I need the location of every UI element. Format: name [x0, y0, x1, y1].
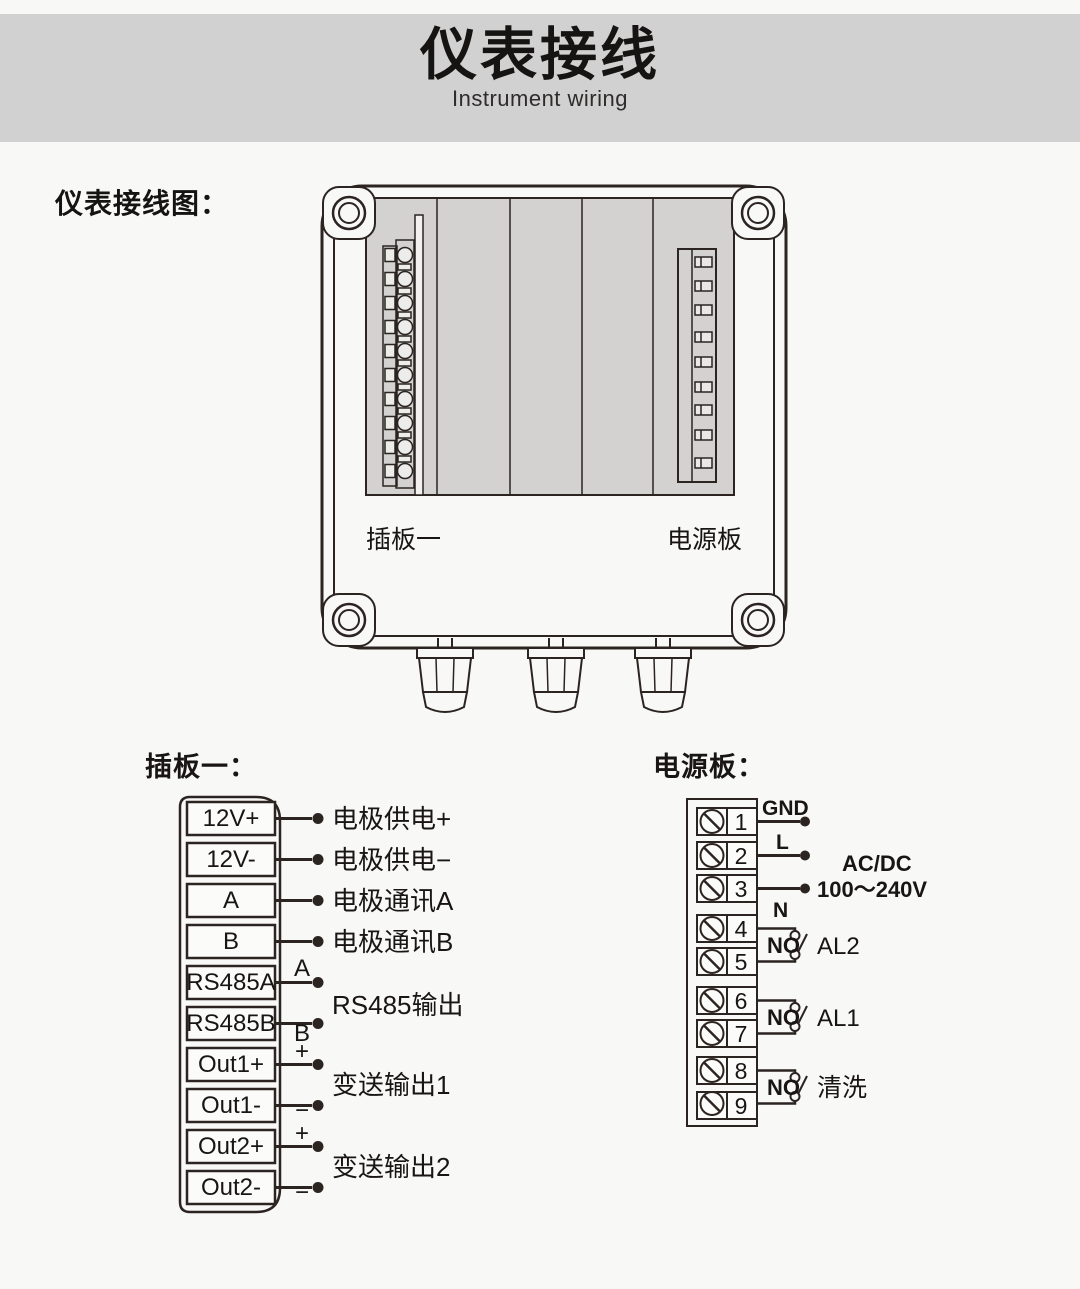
cable-gland: [528, 638, 584, 712]
plugboard-wiring-section: 插板一：: [140, 745, 570, 1235]
supply-rating: AC/DC: [842, 851, 912, 876]
plugboard-connector: [383, 215, 423, 495]
terminal-label: 12V-: [206, 846, 255, 873]
relay-label: AL2: [817, 933, 860, 960]
wire-label: 变送输出2: [332, 1152, 450, 1182]
supply-rating: 100～240V: [817, 877, 927, 902]
wire-label: RS485输出: [332, 990, 464, 1020]
page-subtitle: Instrument wiring: [0, 86, 1080, 112]
wire-dots: [313, 813, 324, 1193]
polarity-mark: +: [295, 1038, 309, 1065]
terminal-label: Out2-: [201, 1174, 261, 1201]
terminal-number: 4: [735, 916, 748, 942]
terminal-number: 2: [735, 843, 748, 869]
slot-left-label: 插板一: [366, 526, 441, 554]
terminal-label: A: [223, 887, 239, 914]
terminal-number: 5: [735, 949, 748, 975]
cable-gland: [635, 638, 691, 712]
terminal-number: 6: [735, 988, 748, 1014]
terminal-label: RS485A: [186, 969, 275, 996]
no-contact-label: NO: [767, 1005, 800, 1030]
diagram-caption: 仪表接线图：: [55, 182, 229, 222]
no-contact-label: NO: [767, 1075, 800, 1100]
header-banner: 仪表接线 Instrument wiring: [0, 14, 1080, 142]
polarity-mark: +: [295, 1120, 309, 1147]
relay-label: AL1: [817, 1005, 860, 1032]
wire-label: 电极通讯B: [332, 927, 453, 957]
gnd-label: GND: [762, 797, 809, 820]
wire-dots: [800, 817, 810, 894]
terminal-label: Out1-: [201, 1092, 261, 1119]
polarity-mark: −: [295, 1179, 309, 1206]
wire-label: 电极供电+: [332, 804, 451, 834]
no-contact-label: NO: [767, 933, 800, 958]
neutral-label: N: [773, 899, 788, 922]
cable-gland: [417, 638, 473, 712]
terminal-label: Out1+: [198, 1051, 264, 1078]
relay-label: 清洗: [817, 1074, 867, 1102]
power-terminal-units: [697, 808, 757, 1119]
terminal-number: 9: [735, 1093, 748, 1119]
wire-label: 电极供电−: [332, 845, 451, 875]
terminal-number: 7: [735, 1021, 748, 1047]
powerboard-title: 电源板：: [653, 752, 765, 782]
slot-right-label: 电源板: [667, 526, 742, 554]
terminal-number: 3: [735, 876, 748, 902]
terminal-label: 12V+: [203, 805, 260, 832]
terminal-label: RS485B: [186, 1010, 275, 1037]
terminal-label: B: [223, 928, 239, 955]
terminal-number: 8: [735, 1058, 748, 1084]
plugboard-title: 插板一：: [145, 752, 257, 782]
wire-label: 电极通讯A: [332, 886, 454, 916]
powerboard-wiring-section: 电源板：: [645, 745, 1080, 1225]
live-label: L: [776, 831, 789, 854]
page-title: 仪表接线: [0, 14, 1080, 86]
wire-label: 变送输出1: [332, 1070, 450, 1100]
terminal-number: 1: [735, 809, 748, 835]
polarity-mark: A: [294, 955, 310, 982]
device-enclosure-drawing: 插板一 电源板: [318, 180, 798, 740]
terminal-label: Out2+: [198, 1133, 264, 1160]
